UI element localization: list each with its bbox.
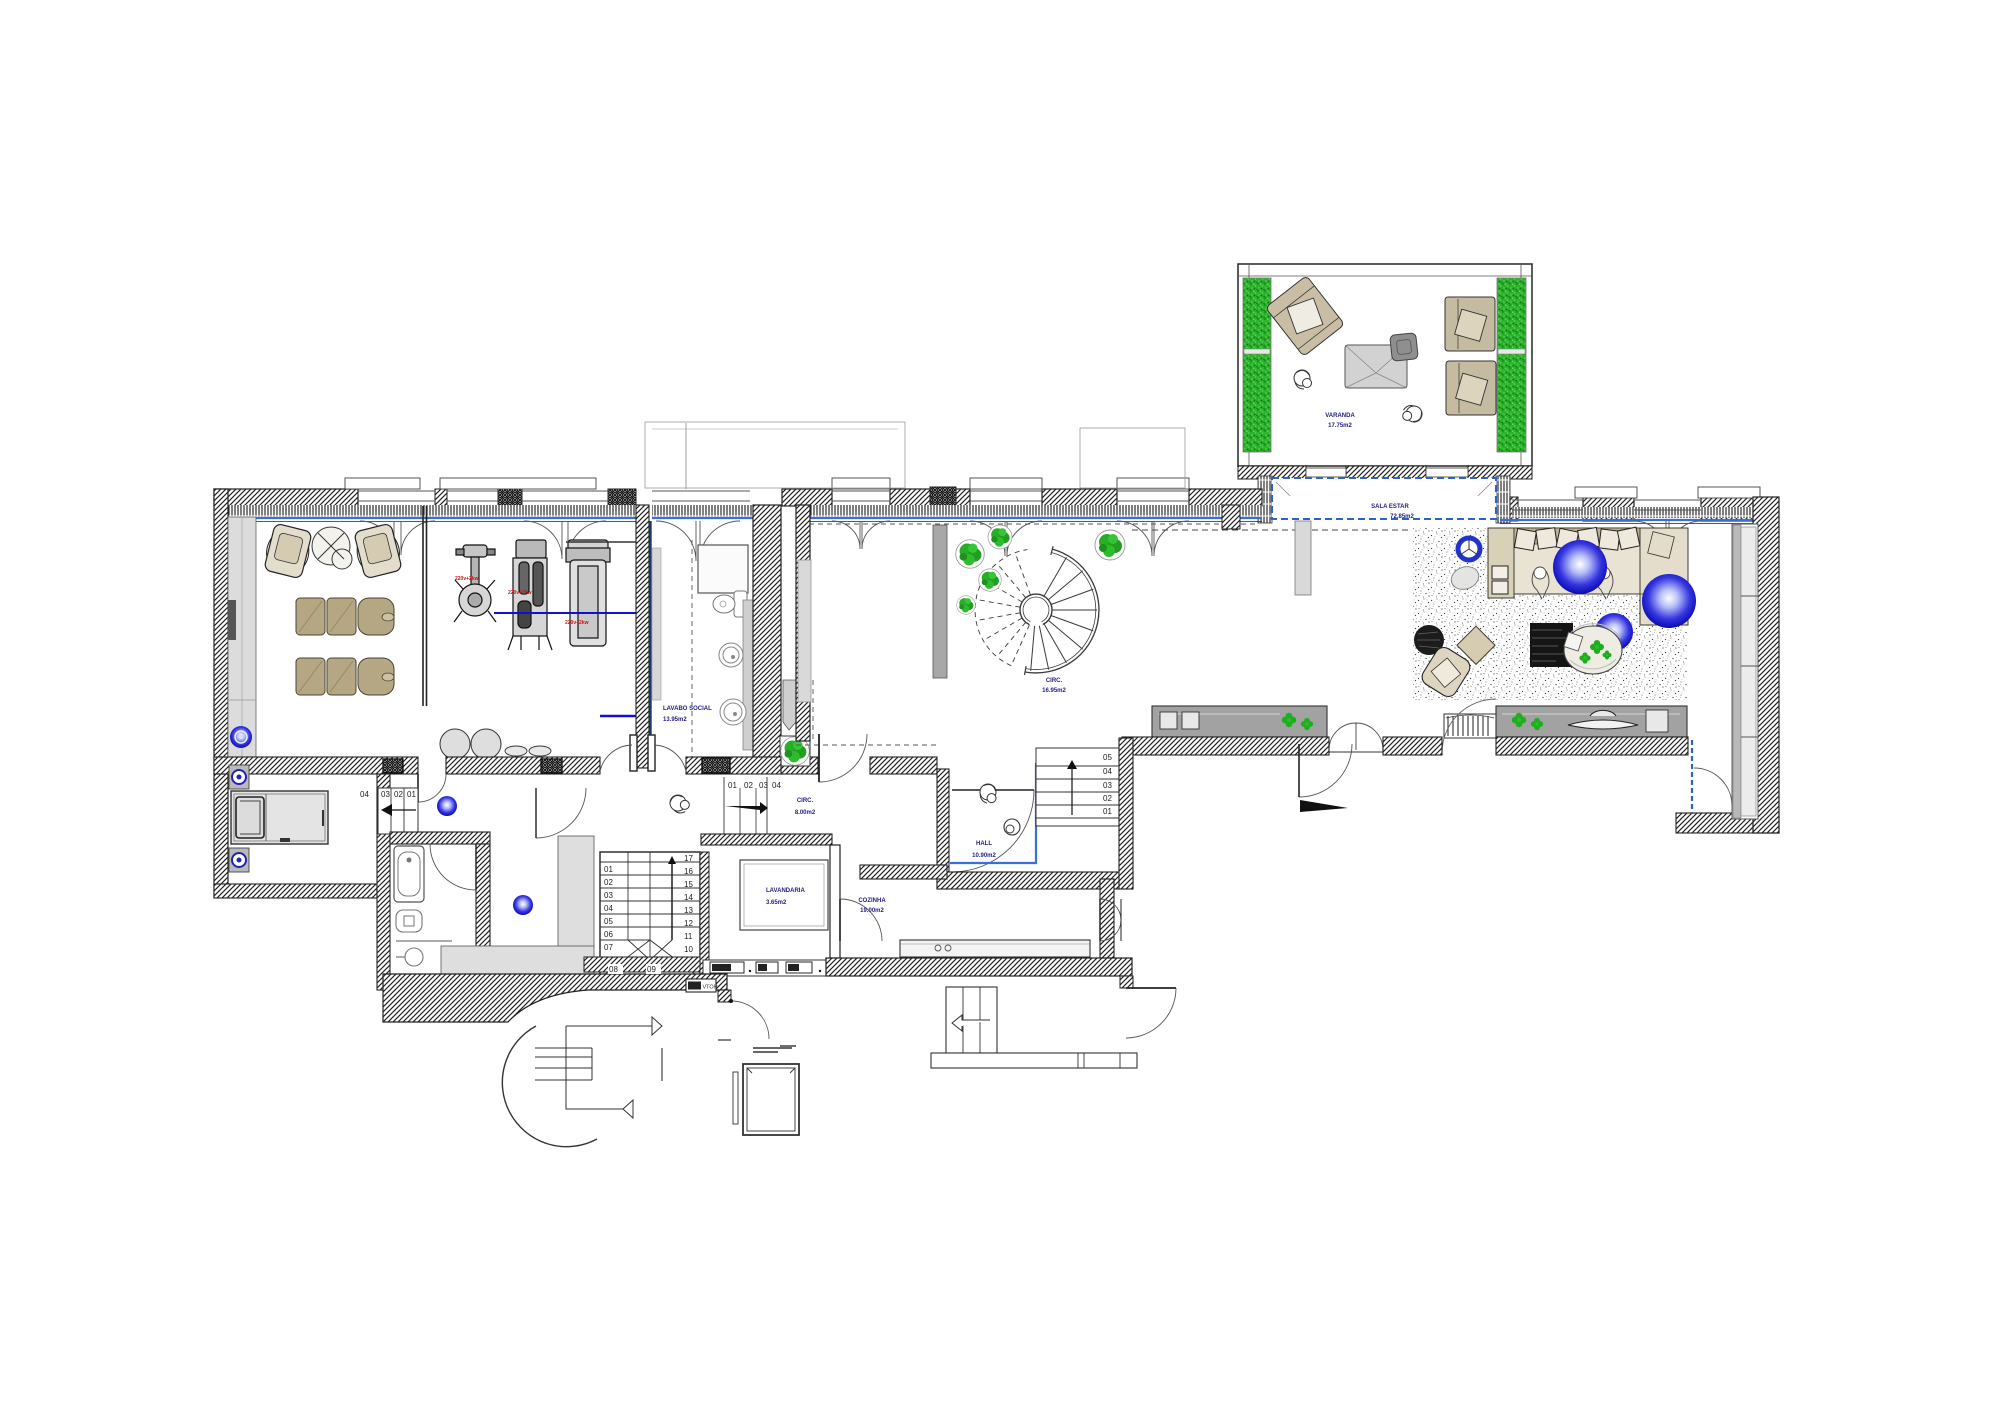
svg-text:17.75m2: 17.75m2: [1328, 423, 1352, 429]
svg-text:220v+2kw: 220v+2kw: [508, 590, 532, 596]
svg-text:03: 03: [759, 781, 768, 790]
svg-text:11: 11: [684, 932, 693, 941]
svg-text:02: 02: [744, 781, 753, 790]
svg-text:8.00m2: 8.00m2: [795, 810, 816, 816]
svg-text:LAVANDARIA: LAVANDARIA: [766, 888, 805, 894]
svg-text:05: 05: [1103, 753, 1112, 762]
svg-text:02: 02: [394, 790, 403, 799]
svg-text:VARANDA: VARANDA: [1325, 413, 1355, 419]
svg-text:09: 09: [647, 965, 656, 974]
svg-text:04: 04: [604, 904, 613, 913]
svg-text:01: 01: [407, 790, 416, 799]
svg-text:CIRC.: CIRC.: [797, 798, 814, 804]
svg-text:04: 04: [772, 781, 781, 790]
svg-text:13: 13: [684, 906, 693, 915]
svg-text:14: 14: [684, 893, 693, 902]
svg-text:CIRC.: CIRC.: [1046, 678, 1063, 684]
svg-text:72.85m2: 72.85m2: [1390, 514, 1414, 520]
svg-text:04: 04: [1103, 767, 1112, 776]
svg-text:HALL: HALL: [976, 841, 992, 847]
svg-text:220v+2kw: 220v+2kw: [565, 620, 589, 626]
svg-text:15: 15: [684, 880, 693, 889]
svg-text:02: 02: [1103, 794, 1112, 803]
svg-text:03: 03: [604, 891, 613, 900]
svg-text:3.65m2: 3.65m2: [766, 900, 787, 906]
svg-text:01: 01: [1103, 807, 1112, 816]
svg-text:10: 10: [684, 945, 693, 954]
svg-text:VTOR: VTOR: [703, 985, 718, 991]
svg-text:03: 03: [381, 790, 390, 799]
svg-text:05: 05: [604, 917, 613, 926]
svg-text:02: 02: [604, 878, 613, 887]
svg-text:12: 12: [684, 919, 693, 928]
svg-text:04: 04: [360, 790, 369, 799]
svg-text:LAVABO SOCIAL: LAVABO SOCIAL: [663, 706, 712, 712]
svg-text:19.00m2: 19.00m2: [860, 908, 884, 914]
svg-text:16: 16: [684, 867, 693, 876]
svg-text:16.95m2: 16.95m2: [1042, 688, 1066, 694]
svg-text:17: 17: [684, 854, 693, 863]
svg-text:06: 06: [604, 930, 613, 939]
svg-text:10.90m2: 10.90m2: [972, 853, 996, 859]
svg-text:08: 08: [609, 965, 618, 974]
svg-text:13.95m2: 13.95m2: [663, 717, 687, 723]
svg-text:220v+2kw: 220v+2kw: [455, 576, 479, 582]
svg-text:01: 01: [604, 865, 613, 874]
svg-text:SALA ESTAR: SALA ESTAR: [1371, 504, 1409, 510]
svg-text:COZINHA: COZINHA: [858, 898, 886, 904]
svg-text:03: 03: [1103, 781, 1112, 790]
svg-text:01: 01: [728, 781, 737, 790]
svg-text:07: 07: [604, 943, 613, 952]
